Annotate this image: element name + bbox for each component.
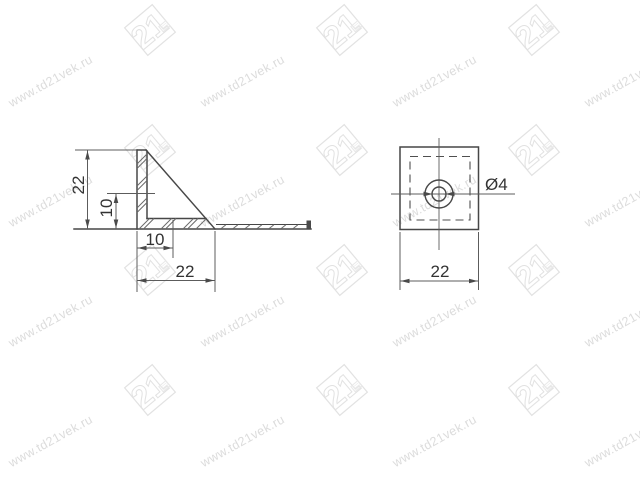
side-dim-hole-height-label: 10 (97, 199, 116, 218)
side-dim-hole-offset-label: 10 (146, 230, 165, 249)
side-dim-width-label: 22 (176, 262, 195, 281)
panel-end-cap (307, 221, 312, 229)
top-dim-hole-diameter-label: Ø4 (485, 175, 508, 194)
side-view: 22 10 10 (69, 150, 311, 292)
technical-drawing: 22 10 10 (0, 0, 640, 480)
top-view-hidden-edges (410, 157, 470, 221)
top-dim-hole-diameter: Ø4 (424, 175, 508, 196)
side-dim-height-label: 22 (69, 176, 88, 195)
drawing-canvas: 21 www.td21vek.ruwww.td21vek.ruwww.td21v… (0, 0, 640, 480)
top-dim-width-label: 22 (431, 262, 450, 281)
top-view: Ø4 22 (391, 138, 515, 290)
